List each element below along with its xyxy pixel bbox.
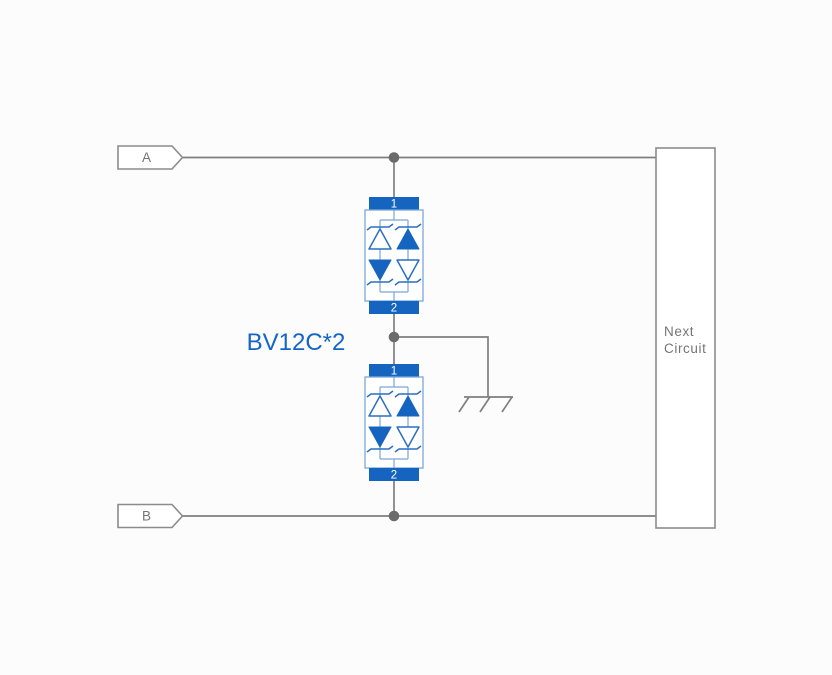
net-tag-a-label: A: [142, 150, 151, 165]
circuit-diagram-canvas: 1 2 A B Next: [0, 0, 832, 675]
net-tag-b: B: [118, 505, 183, 528]
next-circuit-label-line2: Circuit: [664, 341, 706, 356]
ground-symbol: [459, 397, 513, 412]
next-circuit-block: Next Circuit: [656, 148, 715, 528]
junction-node-bottom: [389, 511, 400, 522]
ground-hash: [480, 397, 490, 412]
tvs-component-lower: [365, 364, 423, 482]
net-tag-b-label: B: [142, 509, 151, 524]
ground-hash: [459, 397, 469, 412]
junction-node-middle: [389, 332, 400, 343]
net-tag-a: A: [118, 146, 183, 169]
tvs-component-upper: [365, 197, 423, 315]
schematic-page: 1 2 A B Next: [0, 0, 832, 675]
part-label: BV12C*2: [247, 329, 346, 356]
next-circuit-label-line1: Next: [664, 324, 694, 339]
junction-node-top: [389, 152, 400, 163]
ground-hash: [502, 397, 512, 412]
